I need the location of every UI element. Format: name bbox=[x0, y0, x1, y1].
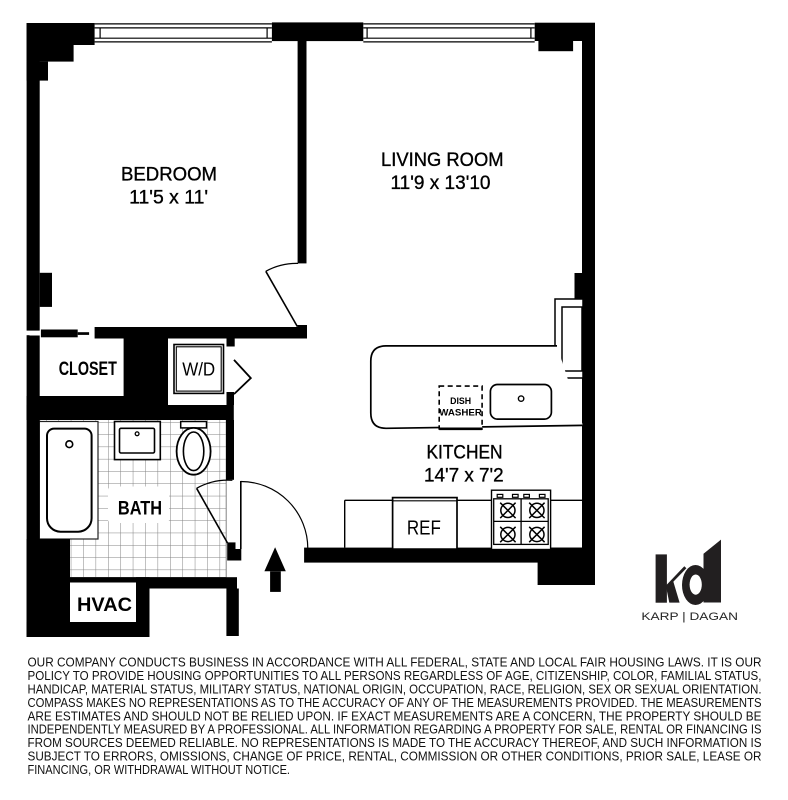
svg-text:BATH: BATH bbox=[118, 497, 162, 519]
svg-text:KITCHEN: KITCHEN bbox=[427, 442, 503, 464]
svg-text:COMPASS MAKES NO REPRESENTATIO: COMPASS MAKES NO REPRESENTATIONS AS TO T… bbox=[28, 696, 762, 710]
svg-text:BEDROOM: BEDROOM bbox=[121, 164, 217, 186]
svg-text:11'9 x 13'10: 11'9 x 13'10 bbox=[391, 172, 491, 194]
svg-text:SUBJECT TO ERRORS, OMISSIONS,: SUBJECT TO ERRORS, OMISSIONS, CHANGE OF … bbox=[28, 750, 762, 764]
svg-text:POLICY TO PROVIDE HOUSING OPPO: POLICY TO PROVIDE HOUSING OPPORTUNITIES … bbox=[28, 669, 762, 683]
svg-text:DISH: DISH bbox=[450, 396, 471, 406]
svg-text:W/D: W/D bbox=[182, 360, 215, 380]
svg-text:OUR COMPANY CONDUCTS BUSINESS: OUR COMPANY CONDUCTS BUSINESS IN ACCORDA… bbox=[28, 656, 762, 670]
svg-text:INDEPENDENTLY MEASURED BY A PR: INDEPENDENTLY MEASURED BY A PROFESSIONAL… bbox=[28, 723, 762, 737]
svg-text:ARE ESTIMATES AND SHOULD NOT B: ARE ESTIMATES AND SHOULD NOT BE RELIED U… bbox=[28, 709, 762, 723]
svg-text:HANDICAP, MATERIAL STATUS, MIL: HANDICAP, MATERIAL STATUS, MILITARY STAT… bbox=[28, 683, 762, 697]
svg-text:CLOSET: CLOSET bbox=[59, 358, 117, 380]
svg-text:FINANCING, OR WITHDRAWAL WITHO: FINANCING, OR WITHDRAWAL WITHOUT NOTICE. bbox=[28, 763, 291, 777]
svg-text:FROM SOURCES DEEMED RELIABLE.: FROM SOURCES DEEMED RELIABLE. NO REPRESE… bbox=[28, 736, 762, 750]
svg-text:HVAC: HVAC bbox=[77, 594, 132, 616]
svg-text:KARP | DAGAN: KARP | DAGAN bbox=[641, 611, 738, 623]
svg-text:WASHER: WASHER bbox=[439, 408, 482, 418]
svg-text:14'7 x 7'2: 14'7 x 7'2 bbox=[424, 465, 504, 487]
svg-text:11'5 x 11': 11'5 x 11' bbox=[129, 187, 208, 209]
svg-text:REF: REF bbox=[407, 517, 441, 539]
svg-text:LIVING ROOM: LIVING ROOM bbox=[381, 149, 504, 171]
